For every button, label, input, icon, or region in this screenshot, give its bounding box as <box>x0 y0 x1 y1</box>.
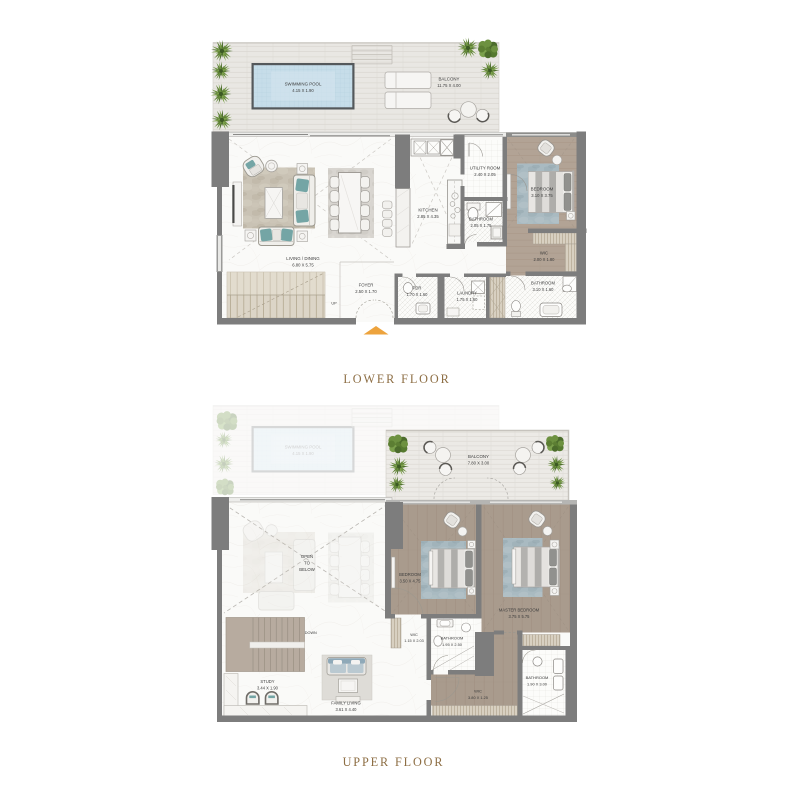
svg-text:BALCONY: BALCONY <box>439 77 460 82</box>
svg-text:1.15 X 2.03: 1.15 X 2.03 <box>404 639 423 643</box>
svg-text:WIC: WIC <box>410 632 418 637</box>
svg-text:KITCHEN: KITCHEN <box>418 208 437 213</box>
svg-text:BEDROOM: BEDROOM <box>531 187 554 192</box>
svg-text:1.95 X 2.50: 1.95 X 2.50 <box>442 642 463 647</box>
svg-text:OPEN: OPEN <box>301 554 313 559</box>
svg-text:3.80 X 1.25: 3.80 X 1.25 <box>468 695 488 700</box>
svg-text:UTILITY ROOM: UTILITY ROOM <box>470 166 501 171</box>
svg-text:DOWN: DOWN <box>305 631 317 635</box>
svg-text:2.05 X 1.75: 2.05 X 1.75 <box>471 223 493 228</box>
svg-text:SWIMMING POOL: SWIMMING POOL <box>285 82 322 87</box>
svg-text:LIVING / DINING: LIVING / DINING <box>286 256 320 261</box>
svg-text:1.70 X 1.60: 1.70 X 1.60 <box>407 292 429 297</box>
svg-text:BELOW: BELOW <box>299 567 315 572</box>
svg-text:BATHROOM: BATHROOM <box>441 636 464 641</box>
svg-text:3.50 X 4.75: 3.50 X 4.75 <box>400 579 422 584</box>
svg-text:BEDROOM: BEDROOM <box>399 572 421 577</box>
svg-text:BATHROOM: BATHROOM <box>526 675 549 680</box>
svg-text:PDR: PDR <box>413 286 422 291</box>
svg-text:UP: UP <box>331 302 337 306</box>
svg-text:BATHROOM: BATHROOM <box>531 281 555 286</box>
svg-text:4.15 X 1.90: 4.15 X 1.90 <box>292 88 314 93</box>
svg-text:BALCONY: BALCONY <box>468 454 489 459</box>
svg-text:TO: TO <box>304 561 311 566</box>
svg-text:6.80 X 5.75: 6.80 X 5.75 <box>292 263 314 268</box>
svg-text:WIC: WIC <box>474 689 482 694</box>
svg-text:1.90 X 3.00: 1.90 X 3.00 <box>527 681 548 686</box>
svg-text:3.61 X 4.40: 3.61 X 4.40 <box>336 707 358 712</box>
svg-text:7.80 X 3.00: 7.80 X 3.00 <box>468 461 490 466</box>
svg-text:LOWER FLOOR: LOWER FLOOR <box>343 372 450 386</box>
svg-text:FAMILY LIVING: FAMILY LIVING <box>331 701 360 706</box>
svg-text:MASTER BEDROOM: MASTER BEDROOM <box>499 608 540 613</box>
svg-text:1.75 X 1.60: 1.75 X 1.60 <box>457 297 479 302</box>
svg-text:2.00 X 1.80: 2.00 X 1.80 <box>534 257 556 262</box>
svg-text:STUDY: STUDY <box>260 679 274 684</box>
svg-text:3.10 X 3.75: 3.10 X 3.75 <box>531 193 553 198</box>
svg-text:3.44 X 1.90: 3.44 X 1.90 <box>257 685 279 690</box>
svg-text:11.75 X 4.00: 11.75 X 4.00 <box>437 83 461 88</box>
svg-text:2.50 X 1.70: 2.50 X 1.70 <box>355 289 377 294</box>
svg-text:BATHROOM: BATHROOM <box>469 217 493 222</box>
svg-text:WIC: WIC <box>540 251 548 256</box>
svg-text:2.40 X 2.05: 2.40 X 2.05 <box>474 172 496 177</box>
svg-text:FOYER: FOYER <box>359 283 374 288</box>
svg-text:UPPER FLOOR: UPPER FLOOR <box>343 755 445 769</box>
svg-text:3.10 X 1.60: 3.10 X 1.60 <box>533 287 555 292</box>
svg-text:LAUNDRY: LAUNDRY <box>457 291 477 296</box>
svg-text:3.75 X 5.75: 3.75 X 5.75 <box>509 614 531 619</box>
svg-text:2.85 X 4.35: 2.85 X 4.35 <box>417 214 439 219</box>
